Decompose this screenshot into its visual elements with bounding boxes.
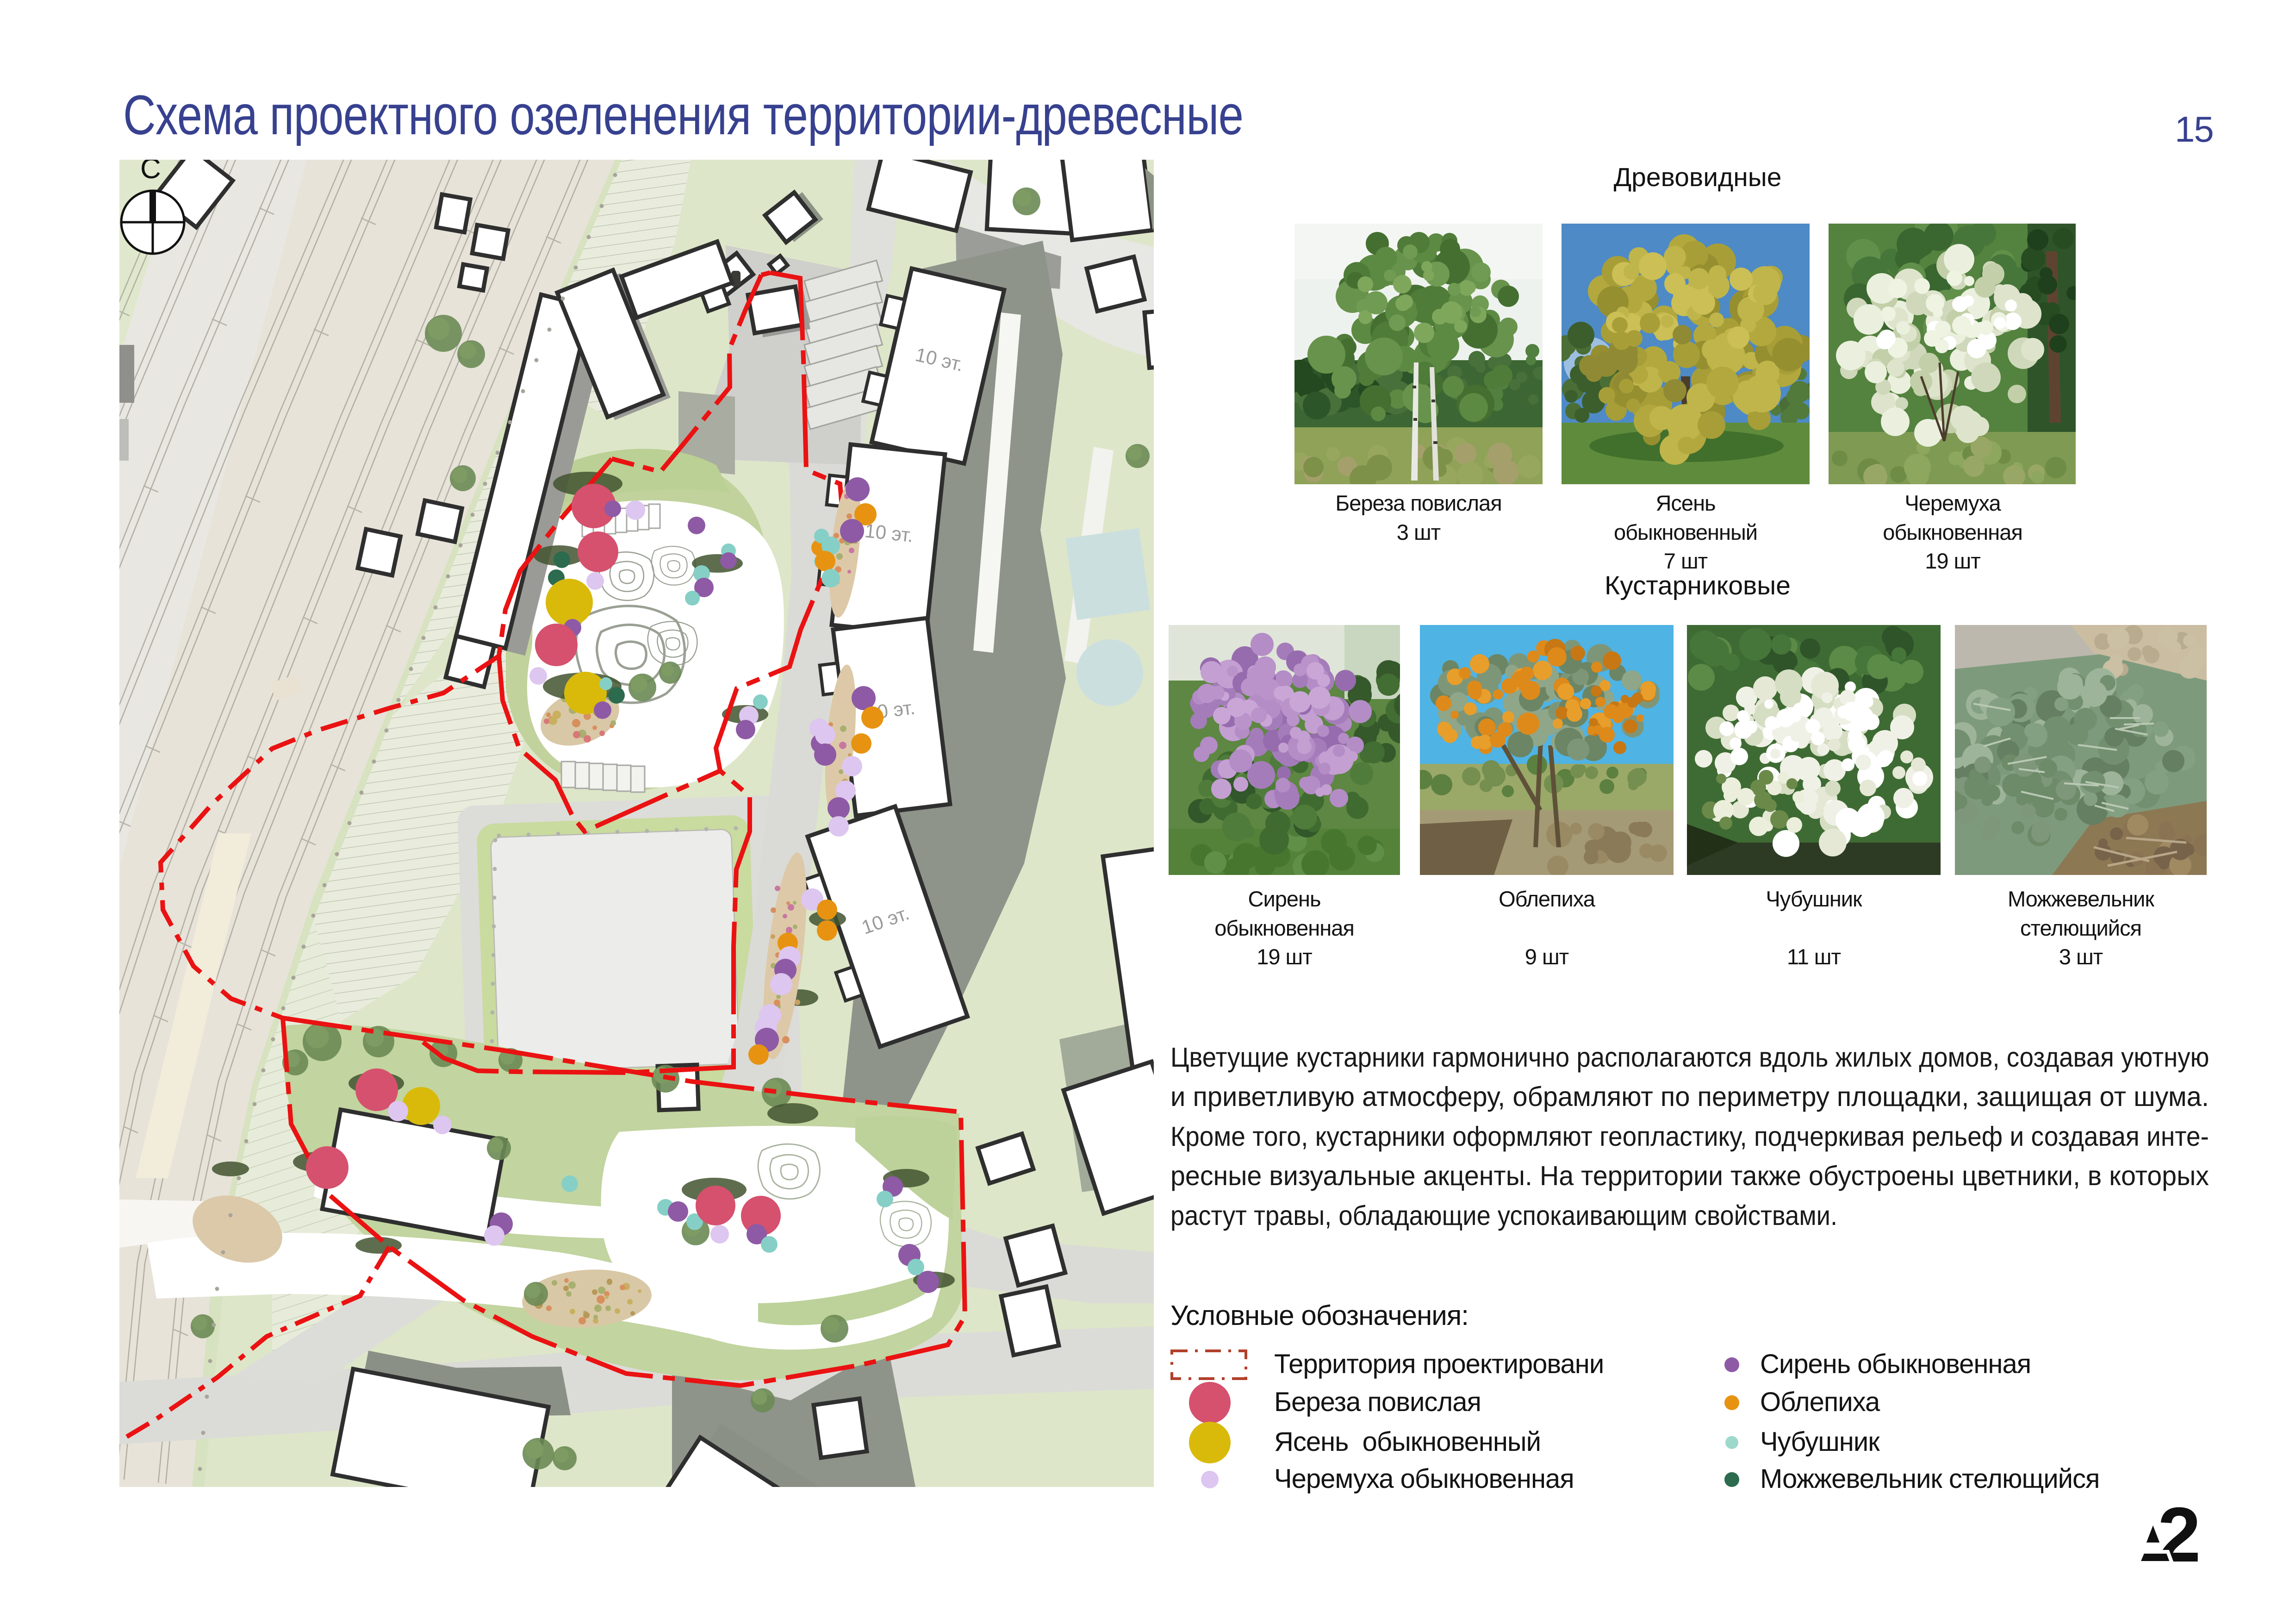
svg-text:С: С bbox=[140, 160, 161, 185]
